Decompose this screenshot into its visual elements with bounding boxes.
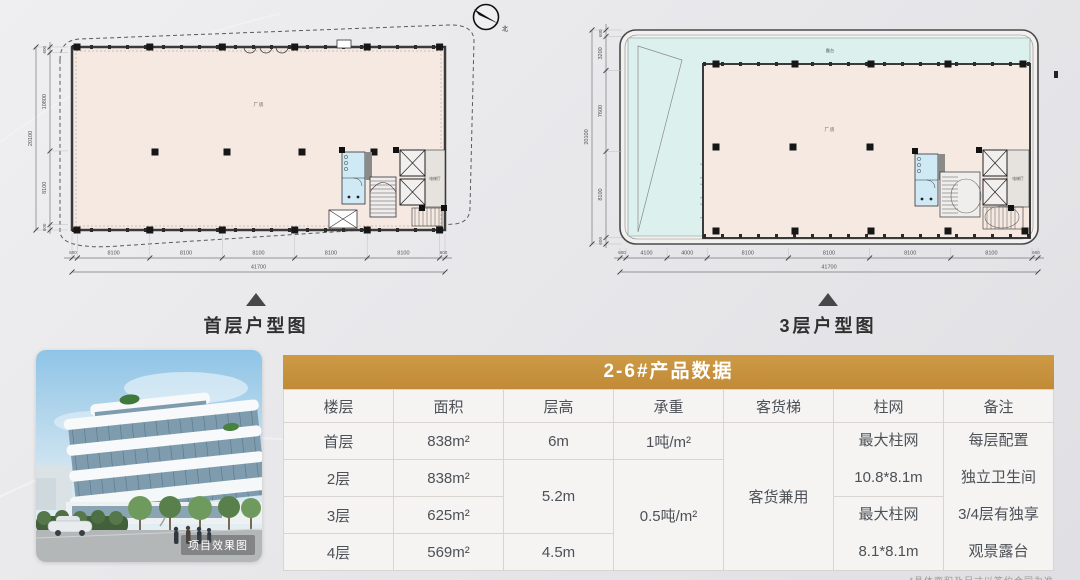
col-header-elevator: 客货梯 — [724, 390, 834, 423]
caption-text: 首层户型图 — [176, 312, 336, 338]
first-floor-caption: 首层户型图 — [176, 293, 336, 338]
brochure-page: 北 — [0, 0, 1080, 580]
left-dimensions: 600 3200 7600 8100 600 20100 — [584, 24, 622, 248]
svg-text:3200: 3200 — [598, 47, 604, 59]
table-footnote: *具体面积及尺寸以签约合同为准 — [283, 574, 1054, 580]
svg-text:8100: 8100 — [985, 251, 997, 257]
product-data-table: 楼层 面积 层高 承重 客货梯 柱网 备注 首层 838m² 6m 1吨/m² … — [283, 389, 1054, 571]
table-title: 2-6#产品数据 — [283, 355, 1054, 389]
floor-load: 0.5吨/m² — [614, 460, 724, 571]
floor-area: 625m² — [394, 497, 504, 534]
svg-text:8100: 8100 — [252, 251, 264, 257]
floor-name: 4层 — [284, 534, 394, 571]
svg-text:8100: 8100 — [397, 251, 409, 257]
floor-area: 838m² — [394, 423, 504, 460]
svg-text:600: 600 — [42, 223, 47, 231]
svg-text:20100: 20100 — [584, 129, 590, 144]
svg-text:41700: 41700 — [251, 265, 266, 271]
svg-text:8100: 8100 — [107, 251, 119, 257]
terrace-label: 露台 — [826, 47, 834, 54]
floor-area: 838m² — [394, 460, 504, 497]
floor-height: 5.2m — [504, 460, 614, 534]
floor-load: 1吨/m² — [614, 423, 724, 460]
caption-text: 3层户型图 — [748, 312, 908, 338]
svg-text:8100: 8100 — [742, 251, 754, 257]
col-header-area: 面积 — [394, 390, 504, 423]
product-data-card: 2-6#产品数据 楼层 面积 层高 承重 客货梯 柱网 备注 首层 838m² … — [283, 355, 1054, 580]
svg-text:4100: 4100 — [640, 251, 652, 257]
svg-text:7600: 7600 — [598, 105, 604, 117]
bottom-dimensions: 600 4100 4000 8100 8100 8100 8100 600 41… — [614, 248, 1044, 275]
pillar-cell-upper: 最大柱网 10.8*8.1m — [834, 423, 944, 497]
rendering-illustration — [36, 350, 262, 562]
left-dimensions: 600 10800 8100 600 20100 — [28, 42, 68, 234]
svg-text:20100: 20100 — [28, 131, 34, 146]
svg-text:41700: 41700 — [821, 265, 836, 271]
table-header-row: 楼层 面积 层高 承重 客货梯 柱网 备注 — [284, 390, 1054, 423]
svg-text:8100: 8100 — [180, 251, 192, 257]
caption-arrow-icon — [818, 293, 838, 306]
floor-height: 4.5m — [504, 534, 614, 571]
svg-text:8100: 8100 — [598, 188, 604, 200]
svg-text:600: 600 — [42, 45, 47, 53]
svg-text:8100: 8100 — [904, 251, 916, 257]
svg-text:600: 600 — [598, 237, 603, 245]
col-header-height: 层高 — [504, 390, 614, 423]
svg-text:600: 600 — [618, 250, 626, 255]
lobby-label: 电梯厅 — [429, 176, 441, 181]
table-row: 首层 838m² 6m 1吨/m² 客货兼用 最大柱网 10.8*8.1m 每层… — [284, 423, 1054, 460]
floor-name: 3层 — [284, 497, 394, 534]
notes-cell: 每层配置 独立卫生间 3/4层有独享 观景露台 — [944, 423, 1054, 571]
photo-caption: 项目效果图 — [181, 535, 255, 555]
area-label: 厂房 — [825, 126, 836, 133]
plan-annotation-mark — [1054, 71, 1058, 78]
first-floor-plan: 电梯厅 厂房 600 8100 8100 8100 8100 8100 600 … — [22, 2, 567, 294]
svg-text:8100: 8100 — [325, 251, 337, 257]
col-header-pillar: 柱网 — [834, 390, 944, 423]
floor-name: 2层 — [284, 460, 394, 497]
svg-text:4000: 4000 — [681, 251, 693, 257]
svg-text:8100: 8100 — [823, 251, 835, 257]
floor-area: 569m² — [394, 534, 504, 571]
lobby-label: 电梯厅 — [1012, 176, 1024, 181]
svg-text:10800: 10800 — [42, 94, 48, 109]
area-label: 厂房 — [254, 101, 265, 108]
caption-arrow-icon — [246, 293, 266, 306]
elevator-cell: 客货兼用 — [724, 423, 834, 571]
svg-text:600: 600 — [1032, 250, 1040, 255]
svg-text:8100: 8100 — [42, 182, 48, 194]
col-header-load: 承重 — [614, 390, 724, 423]
pillar-cell-lower: 最大柱网 8.1*8.1m — [834, 497, 944, 571]
col-header-notes: 备注 — [944, 390, 1054, 423]
svg-text:600: 600 — [440, 250, 448, 255]
bottom-dimensions: 600 8100 8100 8100 8100 8100 600 41700 — [64, 234, 452, 275]
project-rendering-photo: 项目效果图 — [36, 350, 262, 562]
third-floor-caption: 3层户型图 — [748, 293, 908, 338]
svg-text:600: 600 — [598, 29, 603, 37]
floor-name: 首层 — [284, 423, 394, 460]
col-header-floor: 楼层 — [284, 390, 394, 423]
third-floor-plan: 电梯厅 露台 厂房 600 4100 4000 8100 8100 8100 8… — [578, 2, 1078, 294]
svg-text:600: 600 — [69, 250, 77, 255]
floor-height: 6m — [504, 423, 614, 460]
